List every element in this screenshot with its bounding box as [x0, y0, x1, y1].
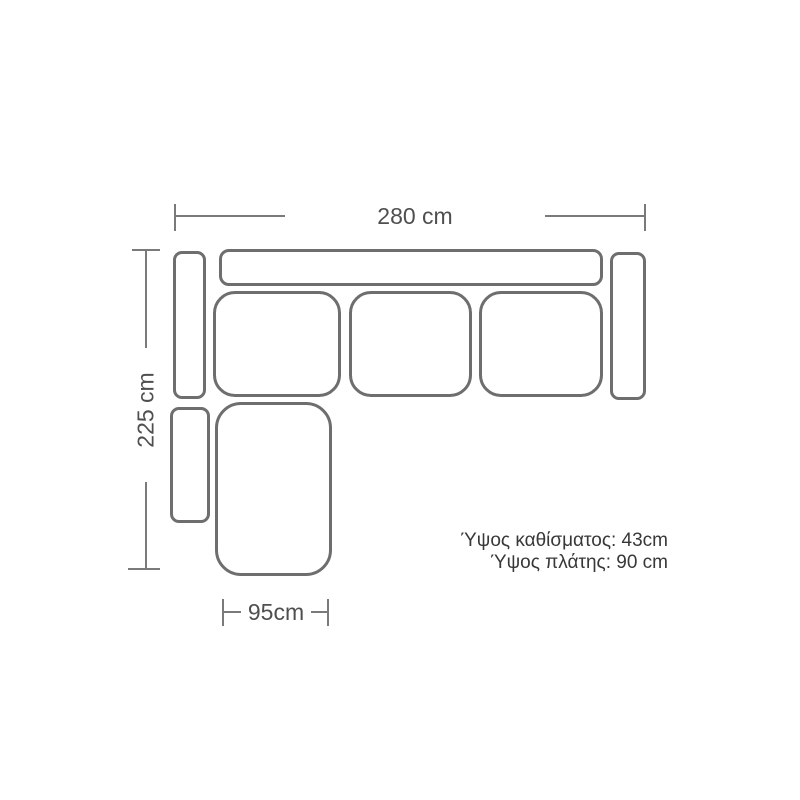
depth-dimension-line-top — [145, 250, 147, 348]
chaise-dimension-line-left — [224, 611, 241, 613]
depth-dimension-tick-bottom — [128, 568, 160, 570]
chaise-seat — [215, 402, 332, 576]
width-dimension-label: 280 cm — [355, 205, 475, 228]
armrest-left-lower — [170, 407, 210, 523]
sofa-backrest — [219, 249, 603, 286]
chaise-dimension-label: 95cm — [241, 601, 311, 624]
depth-dimension-line-bottom — [145, 482, 147, 569]
width-dimension-line-right — [545, 215, 645, 217]
seat-cushion-3 — [479, 291, 603, 397]
width-dimension-tick-left — [174, 204, 176, 231]
armrest-right — [610, 252, 646, 400]
width-dimension-line-left — [175, 215, 285, 217]
chaise-dimension-tick-right — [327, 599, 329, 626]
width-dimension-tick-right — [644, 204, 646, 231]
height-notes: Ύψος καθίσματος: 43cm Ύψος πλάτης: 90 cm — [461, 530, 668, 574]
note-seat-height: Ύψος καθίσματος: 43cm — [461, 530, 668, 552]
seat-cushion-2 — [349, 291, 472, 397]
sofa-dimension-diagram: 280 cm 225 cm 95cm Ύψος καθίσματος: 43cm… — [0, 0, 800, 800]
seat-cushion-1 — [213, 291, 341, 397]
chaise-dimension-line-right — [311, 611, 327, 613]
depth-dimension-label: 225 cm — [135, 372, 158, 447]
armrest-left-upper — [173, 251, 206, 399]
note-back-height: Ύψος πλάτης: 90 cm — [461, 552, 668, 574]
